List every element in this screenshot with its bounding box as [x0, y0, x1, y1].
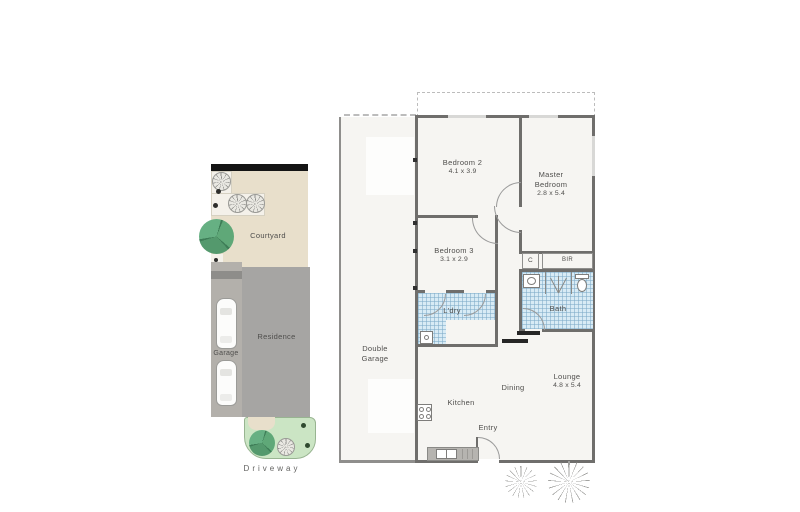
laundry-floor-inset: [446, 320, 495, 344]
basin-bowl-icon: [527, 277, 536, 285]
master-bedroom-label: Master Bedroom 2.8 x 5.4: [530, 170, 572, 198]
bath-threshold: [517, 331, 540, 335]
floorplan-image: Courtyard Garage Residence Driveway Doub…: [0, 0, 800, 512]
interior-wall: [415, 344, 498, 347]
window: [592, 136, 595, 176]
garage-floor-patch: [366, 137, 414, 195]
shower-screen: [571, 272, 572, 294]
room-dims: 2.8 x 5.4: [530, 190, 572, 199]
room-name: Bedroom 3: [418, 246, 490, 256]
interior-wall: [542, 329, 595, 332]
interior-wall: [486, 290, 498, 293]
eaves-dashed-outline: [417, 92, 595, 117]
laundry-label: L'dry: [432, 306, 472, 316]
room-name: Lounge: [543, 372, 591, 382]
lounge-label: Lounge 4.8 x 5.4: [543, 372, 591, 391]
interior-wall: [415, 215, 478, 218]
laundry-tub-drain: [424, 335, 429, 340]
room-dims: 3.1 x 2.9: [418, 256, 490, 265]
floor-plan: Double Garage: [0, 0, 800, 512]
wall-junction: [413, 249, 417, 253]
dining-label: Dining: [489, 383, 537, 393]
tree-outline-icon: [548, 461, 590, 503]
bath-label: Bath: [538, 304, 578, 314]
double-garage-label: Double Garage: [352, 344, 398, 364]
bedroom3-label: Bedroom 3 3.1 x 2.9: [418, 246, 490, 265]
entry-opening: [478, 459, 499, 465]
cupboard-label: C: [522, 257, 539, 265]
dishwasher-icon: [462, 449, 476, 459]
entry-label: Entry: [468, 423, 508, 433]
interior-wall: [446, 290, 464, 293]
hall-threshold: [502, 339, 528, 343]
stove-icon: [417, 404, 432, 421]
shower-screen: [545, 272, 546, 294]
room-dims: 4.8 x 5.4: [543, 382, 591, 391]
tree-outline-icon: [505, 466, 537, 498]
toilet-icon: [577, 279, 587, 292]
room-name: Master Bedroom: [530, 170, 572, 190]
interior-wall: [519, 269, 595, 272]
robe-label: BIR: [542, 257, 593, 265]
interior-wall: [519, 272, 522, 332]
kitchen-label: Kitchen: [437, 398, 485, 408]
bedroom2-label: Bedroom 2 4.1 x 3.9: [425, 158, 500, 177]
interior-wall: [415, 290, 425, 293]
window: [529, 115, 558, 118]
room-name: Bedroom 2: [425, 158, 500, 168]
garage-floor-patch: [368, 379, 414, 433]
room-dims: 4.1 x 3.9: [425, 168, 500, 177]
window: [448, 115, 486, 118]
wall-junction: [413, 158, 417, 162]
wall-junction: [413, 221, 417, 225]
sink-divider: [446, 449, 447, 459]
